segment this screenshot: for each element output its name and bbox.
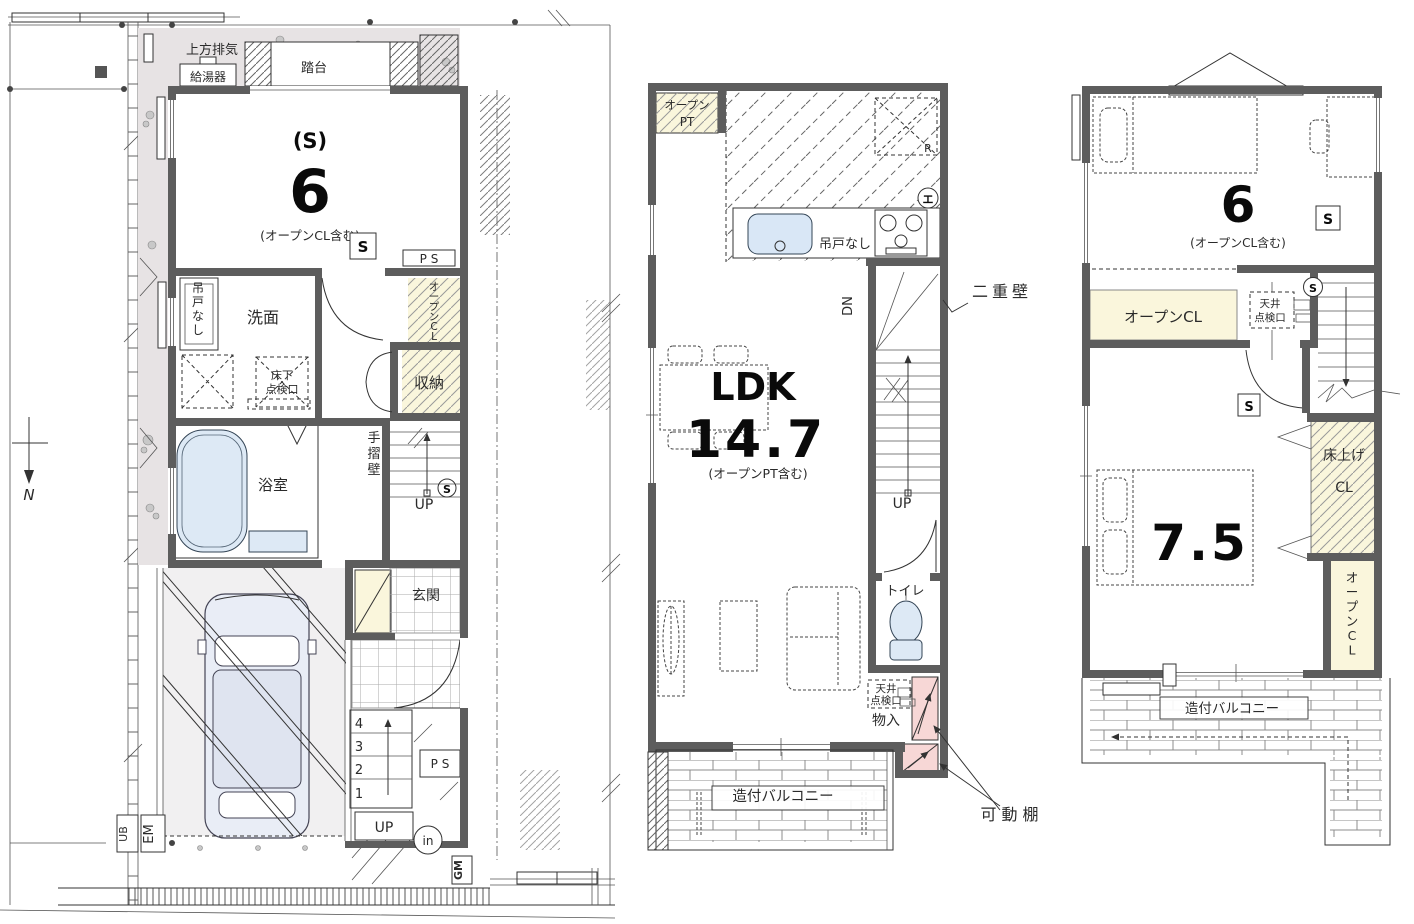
electric-meter: EM	[141, 815, 165, 852]
ps-box-2-label: P S	[431, 757, 450, 771]
car	[198, 594, 316, 838]
step-number-2: 2	[355, 763, 363, 778]
svg-text:in: in	[423, 834, 434, 848]
road-boundary	[0, 868, 615, 918]
raised-closet-label-1: 床上げ	[1323, 448, 1365, 464]
bed-single	[1093, 97, 1257, 173]
north-arrow: N	[12, 417, 48, 504]
washroom-label: 洗面	[247, 308, 279, 327]
ceiling-hatch-3f-label-1: 天井	[1260, 297, 1281, 310]
stairs-2f	[876, 272, 940, 496]
room75-area: 7.5	[1151, 514, 1249, 572]
coffee-table	[720, 601, 757, 671]
step-number-1: 1	[355, 787, 363, 802]
svg-text:EM: EM	[142, 824, 157, 843]
step-number-4: 4	[355, 717, 363, 732]
fridge-label: R	[924, 142, 932, 155]
sofa	[787, 587, 860, 690]
svg-text:S: S	[358, 238, 369, 256]
closet-entry-marks	[1278, 425, 1311, 560]
ldk-note-label: (オープンPT含む)	[708, 466, 807, 481]
room6-3f-area: 6	[1221, 176, 1256, 234]
floor-plan-drawing: N	[0, 0, 1414, 924]
porch-tile	[352, 640, 460, 708]
smoke-detector-3f: S	[1304, 278, 1323, 297]
ceiling-hatch-3f-label-2: 点検口	[1254, 311, 1286, 324]
tv-board	[658, 601, 684, 696]
second-floor-plan: オープン PT R 吊戸なし エ DN 二重壁 LDK 14.7 (オープンPT…	[646, 83, 1044, 850]
up-2f-label: UP	[893, 496, 912, 512]
up-outdoor-label: UP	[375, 820, 394, 836]
room6-1f-note: (オープンCL含む)	[260, 228, 360, 243]
svg-text:エ: エ	[923, 193, 934, 206]
handrail-wall-label: 手摺壁	[367, 431, 380, 478]
up-1f-label: UP	[415, 497, 434, 513]
washing-machine	[182, 355, 233, 408]
ldk-label: LDK	[710, 365, 797, 409]
movable-shelf-areas	[902, 677, 938, 772]
third-floor-plan: 6 (オープンCL含む) S オープンCL 天井 点検口 S 7.5 S 床上げ…	[1072, 53, 1400, 845]
storage-label: 収納	[414, 374, 444, 392]
floor-plan-page: N	[0, 0, 1414, 924]
svg-text:UB: UB	[117, 826, 130, 842]
raised-closet-label-2: CL	[1335, 480, 1353, 496]
water-heater-label: 給湯器	[190, 70, 226, 84]
no-hanging-door-label: 吊戸なし	[192, 281, 204, 337]
intercom-symbol: in	[414, 826, 442, 854]
svg-text:S: S	[1244, 400, 1253, 415]
bathtub	[177, 430, 247, 552]
open-pantry-label-1: オープン	[664, 98, 709, 112]
entrance-label: 玄関	[412, 587, 440, 604]
step-platform-label: 踏台	[301, 61, 327, 76]
no-hanging-cupboard-label: 吊戸なし	[819, 237, 871, 252]
toilet-door	[884, 520, 936, 572]
bath-counter	[249, 531, 307, 552]
unit-bath-mark: UB	[117, 815, 138, 852]
s-box-75: S	[1238, 394, 1260, 416]
ldk-area-label: 14.7	[686, 410, 826, 470]
toilet-fixture	[890, 601, 922, 643]
underfloor-label-1: 床下	[271, 368, 293, 382]
svg-text:S: S	[443, 483, 451, 496]
underfloor-label-2: 点検口	[266, 382, 299, 396]
double-wall-note: 二重壁	[943, 282, 1032, 312]
step-platform	[245, 42, 418, 86]
svg-text:P S: P S	[420, 252, 439, 266]
site-boundary-right	[480, 25, 620, 905]
s-box-3f: S	[1316, 206, 1340, 230]
bathroom-room	[172, 422, 318, 558]
smoke-detector-1f: S	[438, 479, 456, 497]
room6-1f-mark: (S)	[293, 129, 327, 153]
balcony-3f	[1082, 664, 1390, 845]
svg-text:S: S	[1309, 282, 1317, 295]
kitchen-sink	[748, 214, 812, 254]
stairs-3f	[1318, 283, 1400, 402]
open-pantry-label-2: PT	[680, 115, 695, 129]
bathroom-label: 浴室	[258, 476, 288, 494]
balcony-2f-label: 造付バルコニー	[732, 788, 833, 805]
step-number-3: 3	[355, 740, 363, 755]
top-hatch-block	[420, 35, 458, 86]
s-box-1f: S	[350, 233, 376, 259]
svg-text:可動棚: 可動棚	[980, 805, 1043, 824]
desk	[1310, 97, 1377, 177]
gas-meter: GM	[452, 856, 472, 884]
open-closet-3f-label: オープンCL	[1124, 308, 1203, 326]
toilet-label: トイレ	[885, 584, 924, 599]
doors-1f	[322, 278, 398, 415]
svg-text:S: S	[1323, 212, 1333, 228]
closet-label: 物入	[872, 713, 900, 729]
ps-box-1: P S	[403, 250, 455, 266]
svg-text:GM: GM	[452, 860, 465, 880]
movable-shelf-note: 可動棚	[934, 726, 1044, 824]
room6-3f-note: (オープンCL含む)	[1190, 235, 1286, 250]
ceiling-hatch-label-1: 天井	[876, 682, 897, 695]
heat-detector-symbol: エ	[918, 188, 938, 208]
site-boundary-top	[8, 10, 610, 28]
exhaust-label: 上方排気	[186, 42, 238, 58]
north-label: N	[23, 486, 34, 504]
balcony-3f-label: 造付バルコニー	[1185, 701, 1279, 717]
dn-label: DN	[841, 296, 856, 316]
room6-1f-area: 6	[289, 157, 331, 227]
ceiling-hatch-label-2: 点検口	[870, 694, 902, 707]
svg-text:二重壁: 二重壁	[972, 282, 1032, 301]
first-floor-plan: N	[0, 10, 620, 924]
